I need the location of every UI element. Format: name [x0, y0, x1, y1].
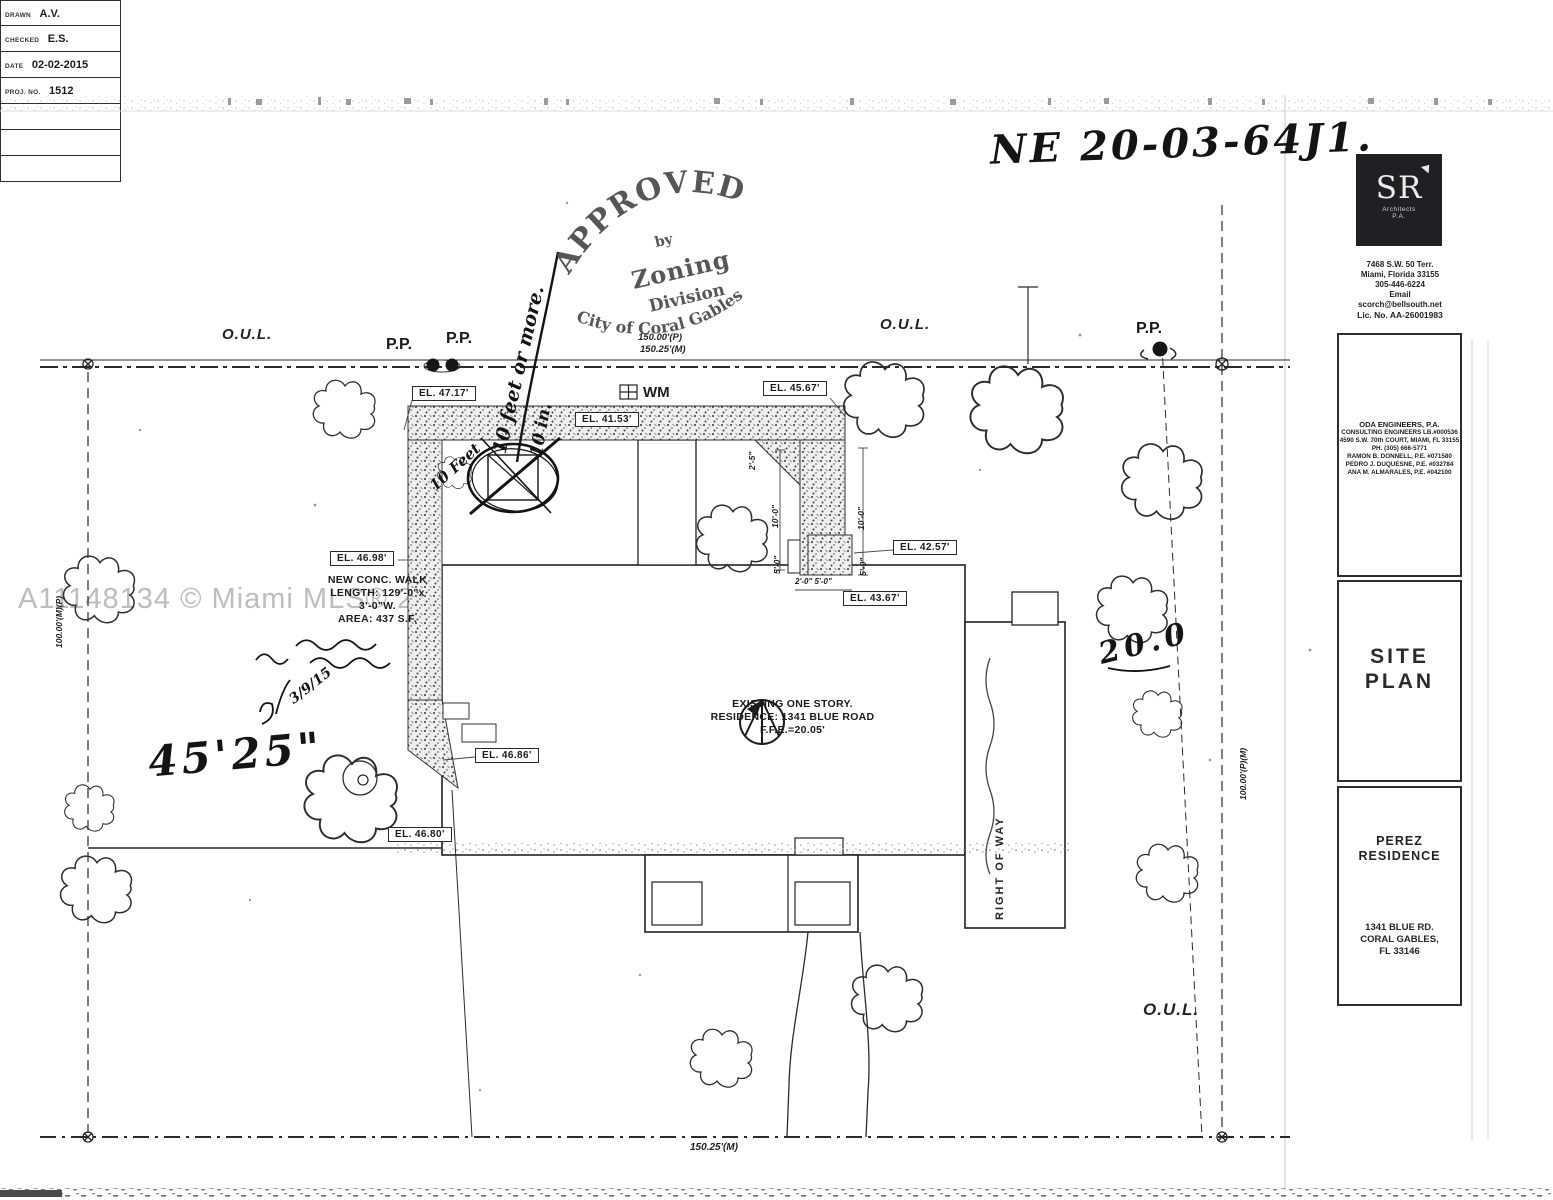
- elevation-label-1: EL. 47.17': [412, 386, 476, 401]
- scanner-noise-top: [0, 96, 1553, 111]
- architect-logo: SR Architects P.A.: [1356, 154, 1442, 246]
- driveway: [787, 932, 869, 1137]
- scanner-noise-bottom: [0, 1188, 1553, 1197]
- oul-label-left: O.U.L.: [222, 326, 272, 343]
- sheet-title-line1: SITE: [1339, 644, 1460, 669]
- elevation-label-6: EL. 43.67': [843, 591, 907, 606]
- oul-label-bottom: O.U.L.: [1143, 1000, 1199, 1020]
- residence-note: EXISTING ONE STORY. RESIDENCE: 1341 BLUE…: [700, 698, 885, 737]
- power-pole-label-1: P.P.: [386, 336, 412, 354]
- power-pole-label-3: P.P.: [1136, 320, 1162, 338]
- elevation-label-4: EL. 46.98': [330, 551, 394, 566]
- dim-10-0-b: 10'-0": [856, 507, 866, 530]
- stamp-by-text: by: [653, 231, 675, 251]
- engineer-block: ODA ENGINEERS, P.A. CONSULTING ENGINEERS…: [1337, 333, 1462, 577]
- walk-note: NEW CONC. WALK LENGTH: 129'-0"x 3'-0"W. …: [300, 574, 455, 626]
- logo-initials: SR: [1356, 170, 1442, 206]
- elevation-label-7: EL. 46.86': [475, 748, 539, 763]
- left-side-dim: 100.00'(M)(P): [54, 596, 64, 648]
- dim-2-0-5-0: 2'-0" 5'-0": [795, 577, 832, 586]
- elevation-label-8: EL. 46.80': [388, 827, 452, 842]
- sheet-title-block: SITE PLAN: [1337, 580, 1462, 782]
- logo-subtitle-1: Architects: [1356, 206, 1442, 213]
- right-of-way-label: RIGHT OF WAY: [994, 648, 1006, 920]
- house-footprint: [442, 440, 1065, 932]
- site-plan-linework: [0, 0, 1553, 1200]
- sheet-title-line2: PLAN: [1339, 669, 1460, 694]
- dim-5-0-a: 5'-0": [772, 556, 782, 574]
- scanned-site-plan-sheet: { "ink_color": "#1c1c1c", "scan": { "wat…: [0, 0, 1553, 1200]
- contour-speckle-band: [395, 843, 1070, 853]
- water-meter-label: WM: [643, 384, 670, 401]
- right-side-dim: 100.00'(P)(M): [1238, 748, 1248, 800]
- dim-5-0-b: 5'-0": [858, 558, 868, 576]
- power-pole-icon: [1153, 342, 1168, 357]
- elevation-label-2: EL. 41.53': [575, 412, 639, 427]
- project-block: PEREZ RESIDENCE 1341 BLUE RD. CORAL GABL…: [1337, 786, 1462, 1006]
- dim-10-0-a: 10'-0": [770, 505, 780, 528]
- logo-subtitle-2: P.A.: [1356, 213, 1442, 220]
- architect-address: 7468 S.W. 50 Terr. Miami, Florida 33155 …: [1344, 260, 1456, 320]
- power-pole-label-2: P.P.: [446, 330, 472, 348]
- oul-label-right: O.U.L.: [880, 316, 930, 333]
- elevation-label-5: EL. 42.57': [893, 540, 957, 555]
- bottom-dim: 150.25'(M): [690, 1142, 738, 1153]
- water-meter-icon: [620, 385, 637, 399]
- elevation-label-3: EL. 45.67': [763, 381, 827, 396]
- dim-2-5: 2'-5": [747, 452, 757, 470]
